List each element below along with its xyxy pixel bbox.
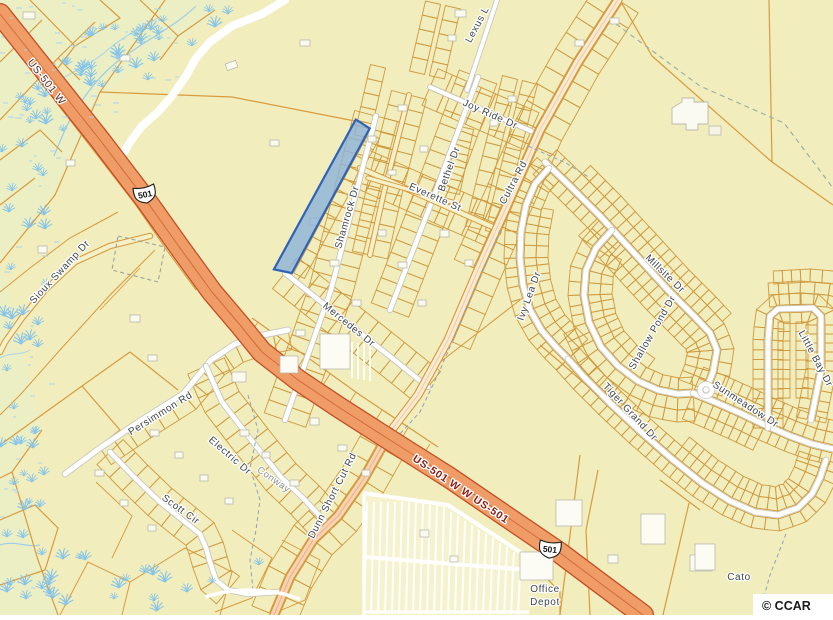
svg-text:Office: Office [530,584,560,595]
svg-text:Cato: Cato [727,572,751,583]
svg-text:Depot: Depot [530,597,560,608]
svg-text:© CCAR: © CCAR [762,599,811,613]
